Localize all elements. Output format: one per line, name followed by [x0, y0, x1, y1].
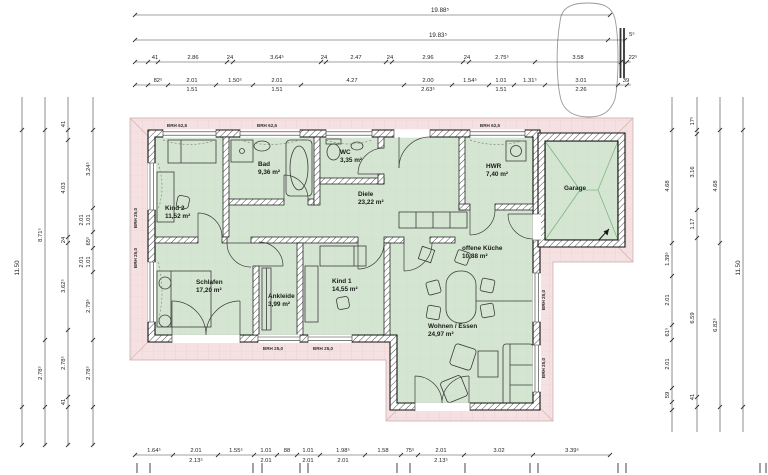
dim-label: 1.51	[271, 87, 282, 93]
brh-label: BRH 25,0	[313, 346, 334, 351]
room-label-schlafen: Schlafen	[196, 279, 223, 286]
dim-label: 41	[61, 121, 67, 127]
dim-label: 17⁵	[689, 116, 696, 125]
room-area-schlafen: 17,20 m²	[196, 287, 222, 294]
dim-label: 11.50	[735, 260, 742, 276]
dim-label: 2.01	[302, 458, 313, 464]
brh-label: BRH 25,0	[263, 346, 284, 351]
dim-label: 2.01	[190, 448, 201, 454]
dim-label: 2.26	[575, 87, 586, 93]
dim-label: 1.98⁵	[336, 447, 350, 454]
dim-label: 1.01	[86, 214, 92, 225]
dim-label: 1.50⁵	[228, 77, 242, 84]
dim-label: 82⁵	[154, 77, 163, 84]
room-label-garage: Garage	[564, 185, 586, 192]
dim-label: 2.13⁵	[434, 457, 448, 464]
dim-label: 6.59	[690, 312, 696, 323]
brh-label: BRH 25,0	[133, 247, 138, 268]
dim-label: 4.68	[665, 180, 671, 191]
dim-label: 1.39⁵	[664, 252, 671, 266]
dim-label: 2.47	[350, 55, 361, 61]
dim-label: 2.01	[337, 458, 348, 464]
dim-label: 3.39⁵	[565, 447, 579, 454]
dim-label: 2.01	[665, 294, 671, 305]
dim-label: 2.78⁵	[85, 366, 92, 380]
dim-label: 3.64⁵	[270, 54, 284, 61]
dim-label: 3.02	[493, 448, 504, 454]
brh-label: BRH 25,0	[541, 289, 546, 310]
dim-label: 2.63⁵	[421, 86, 435, 93]
dim-label: 2.01	[271, 78, 282, 84]
dim-label: 2.13⁵	[189, 457, 203, 464]
dim-label: 3.58	[572, 55, 583, 61]
brh-label: BRH 25,0	[541, 357, 546, 378]
dim-label: 3.24⁵	[85, 162, 92, 176]
dim-label: 2.01	[665, 358, 671, 369]
dim-label: 5⁵	[629, 31, 635, 38]
dim-label: 1.17	[690, 218, 696, 229]
dim-label: 39	[623, 78, 629, 84]
dim-label: 1.54⁵	[463, 77, 477, 84]
dim-label: 3.16	[690, 166, 696, 177]
dim-label: 2.78⁵	[37, 366, 44, 380]
dim-label: 2.01	[186, 78, 197, 84]
dim-label: 61⁵	[664, 327, 671, 336]
dim-label: 2.01	[79, 214, 85, 225]
dim-label: 1.01	[495, 78, 506, 84]
room-label-kueche: offene Küche	[462, 245, 503, 252]
dim-label: 24	[61, 236, 67, 243]
room-area-kind2: 11,52 m²	[165, 213, 190, 220]
room-label-hwr: HWR	[486, 163, 502, 170]
dim-label: 2.78⁵	[60, 356, 67, 370]
room-area-wohnen: 24,97 m²	[428, 331, 454, 338]
room-area-kueche: 10,88 m²	[462, 253, 488, 260]
dim-label: 2.01	[435, 448, 446, 454]
dim-label: 41	[690, 394, 696, 400]
room-area-hwr: 7,40 m²	[486, 171, 508, 178]
dim-label: 8.71⁵	[37, 228, 44, 242]
dim-label: 1.01	[260, 448, 271, 454]
room-area-diele: 23,22 m²	[358, 199, 384, 206]
brh-label: BRH 62,5	[480, 123, 501, 128]
room-label-wc: WC	[340, 149, 351, 156]
dim-label: 2.79⁵	[85, 299, 92, 313]
dim-label: 24	[227, 55, 234, 61]
dim-total-1: 19.88⁵	[431, 7, 449, 14]
dim-total-2: 19.83⁵	[429, 32, 447, 39]
room-area-ankleide: 3,99 m²	[268, 301, 290, 308]
brh-label: BRH 25,0	[133, 207, 138, 228]
dim-label: 75⁵	[406, 447, 415, 454]
brh-label: BRH 62,5	[167, 123, 188, 128]
dim-label: 41	[152, 55, 158, 61]
room-area-bad: 9,36 m²	[258, 169, 280, 176]
dim-label: 3.62⁵	[60, 279, 67, 293]
dim-label: 24	[464, 55, 471, 61]
dim-label: 2.86	[187, 55, 198, 61]
dim-label: 4.27	[346, 78, 357, 84]
dim-label: 59	[665, 392, 671, 398]
dim-label: 4.03	[61, 182, 67, 193]
dim-label: 1.64⁵	[147, 447, 161, 454]
dim-label: 88	[284, 448, 290, 454]
dim-label: 24	[321, 55, 328, 61]
dim-label: 1.01	[86, 256, 92, 267]
floor-plan-canvas: Kind 2 11,52 m² Bad 9,36 m² WC 3,35 m² D…	[0, 0, 768, 475]
room-label-diele: Diele	[358, 191, 374, 198]
dim-label: 22⁵	[629, 54, 638, 61]
room-area-wc: 3,35 m²	[340, 157, 362, 164]
dim-label: 1.51	[186, 87, 197, 93]
room-label-bad: Bad	[258, 161, 270, 168]
room-label-ankleide: Ankleide	[268, 293, 295, 300]
dim-label: 1.01	[302, 448, 313, 454]
room-label-kind2: Kind 2	[165, 205, 185, 212]
dim-label: 11.50	[14, 260, 21, 276]
dim-label: 24	[387, 55, 394, 61]
room-label-wohnen: Wohnen / Essen	[428, 323, 477, 330]
dim-label: 41	[61, 399, 67, 405]
dim-label: 2.75⁵	[495, 54, 509, 61]
dim-label: 3.01	[575, 78, 586, 84]
dim-label: 2.96	[422, 55, 433, 61]
dim-label: 65⁵	[85, 236, 92, 245]
dim-label: 1.55⁵	[229, 447, 243, 454]
room-area-kind1: 14,55 m²	[332, 286, 358, 293]
dim-label: 1.31⁵	[523, 77, 537, 84]
dim-label: 6.82⁵	[712, 318, 719, 332]
dim-label: 4.68	[713, 180, 719, 191]
dim-label: 2.00	[422, 78, 433, 84]
dim-label: 1.58	[377, 448, 388, 454]
room-label-kind1: Kind 1	[332, 278, 352, 285]
dim-label: 2.01	[260, 458, 271, 464]
dim-label: 1.51	[495, 87, 506, 93]
brh-label: BRH 62,5	[257, 123, 278, 128]
dim-label: 2.01	[79, 256, 85, 267]
